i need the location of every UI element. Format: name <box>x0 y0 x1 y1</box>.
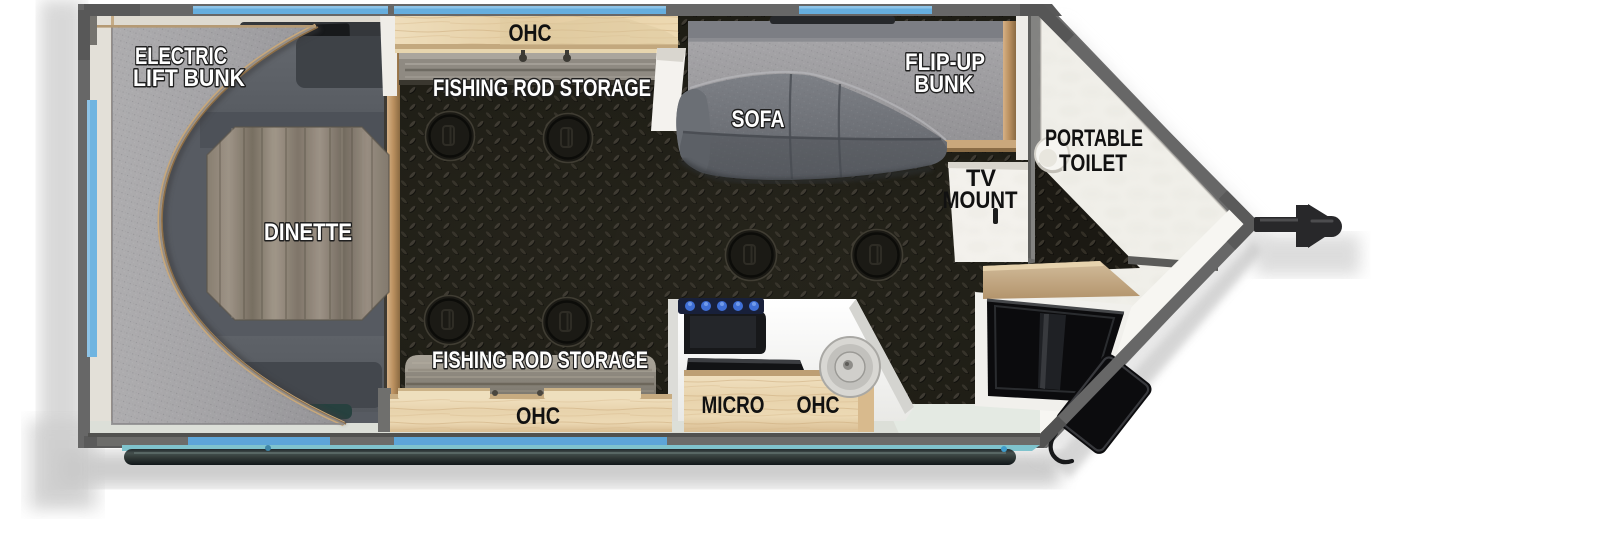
svg-text:FISHING ROD STORAGE: FISHING ROD STORAGE <box>432 347 648 374</box>
svg-text:MOUNT: MOUNT <box>943 187 1018 214</box>
svg-text:FISHING ROD STORAGE: FISHING ROD STORAGE <box>433 75 651 102</box>
svg-text:OHC: OHC <box>509 20 552 47</box>
svg-text:DINETTE: DINETTE <box>264 219 352 246</box>
svg-text:BUNK: BUNK <box>915 71 975 98</box>
svg-text:OHC: OHC <box>516 403 560 430</box>
svg-text:TOILET: TOILET <box>1059 150 1127 177</box>
svg-text:PORTABLE: PORTABLE <box>1045 125 1143 152</box>
svg-text:OHC: OHC <box>797 392 840 419</box>
svg-text:MICRO: MICRO <box>702 392 765 419</box>
svg-text:LIFT BUNK: LIFT BUNK <box>133 65 246 92</box>
svg-text:SOFA: SOFA <box>732 106 785 133</box>
